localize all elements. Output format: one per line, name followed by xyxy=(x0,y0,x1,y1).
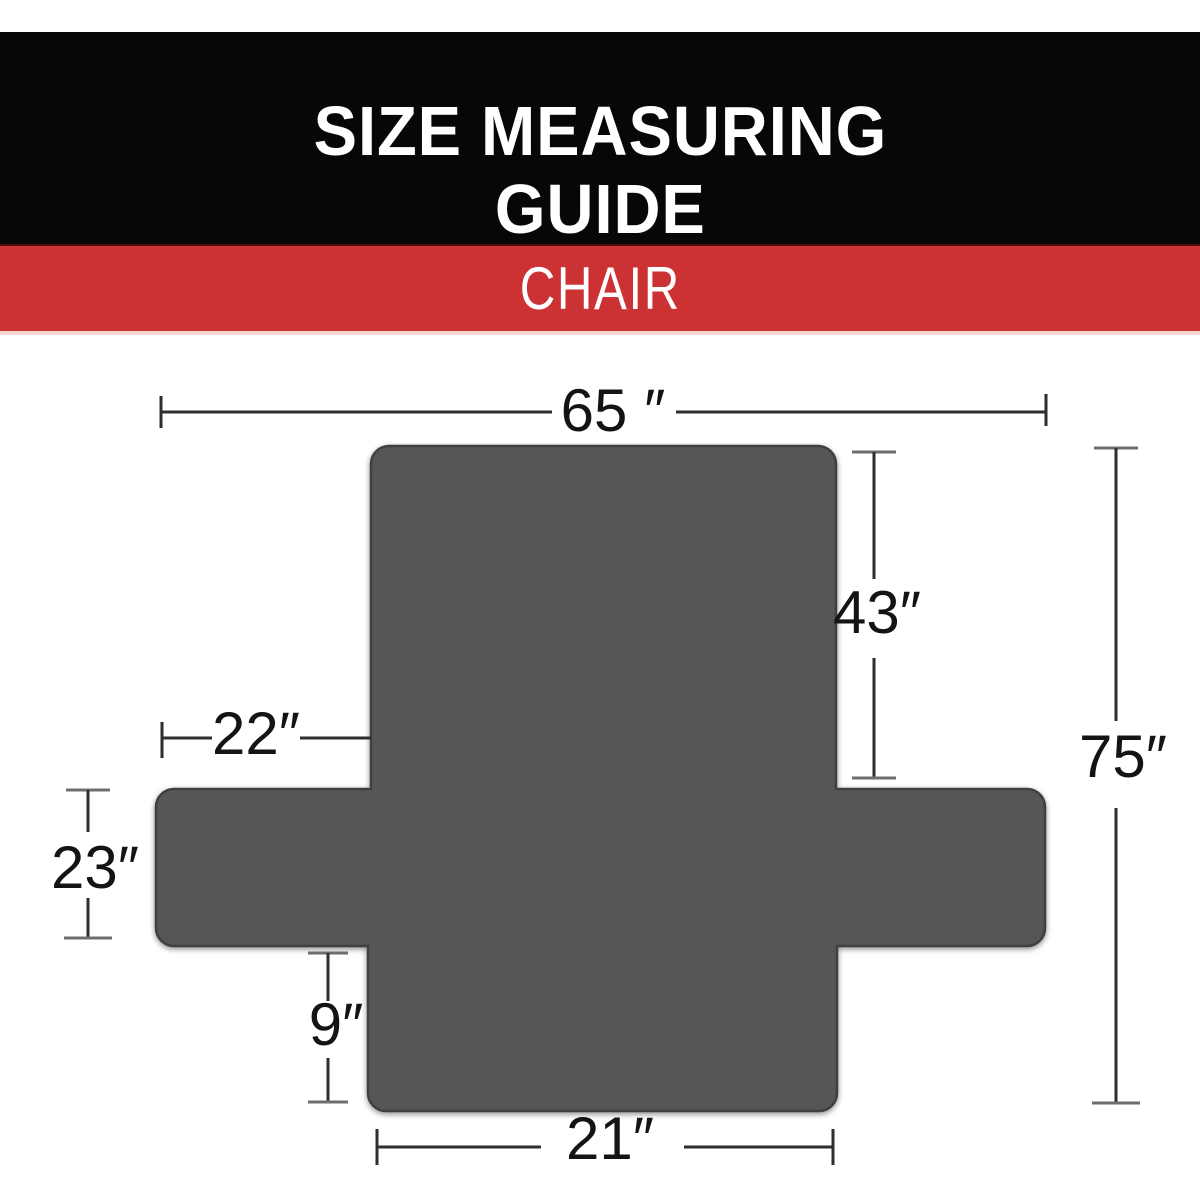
dim-label-total-length: 75″ xyxy=(1079,727,1167,787)
chair-cover-shape xyxy=(156,446,1045,1111)
diagram-drawing xyxy=(0,0,1200,1200)
dim-label-top-width: 65 ″ xyxy=(561,381,666,441)
dim-label-front-drop: 9″ xyxy=(309,995,364,1055)
measurement-diagram: 65 ″ 43″ 75″ 22″ 23″ 9″ 21″ xyxy=(0,0,1200,1200)
dim-label-arm-flap-width: 23″ xyxy=(51,838,139,898)
size-measuring-guide: SIZE MEASURING GUIDE CHAIR xyxy=(0,0,1200,1200)
dim-label-seat-width: 21″ xyxy=(566,1109,654,1169)
dim-label-backrest-length: 43″ xyxy=(833,583,921,643)
dim-label-back-top-edge: 22″ xyxy=(212,704,300,764)
